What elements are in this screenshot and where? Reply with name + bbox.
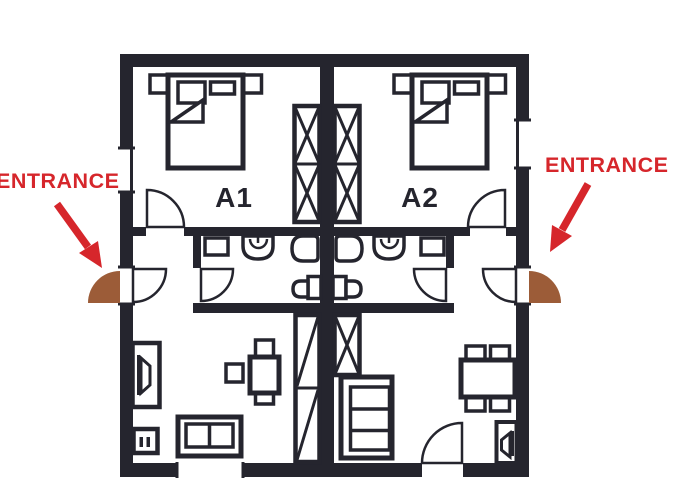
window-bottom-wall-a1 [178,462,242,478]
exterior-door-swing-right [529,271,561,303]
electrical-panel [134,429,158,453]
bidet [293,281,308,297]
wall-bathroom-a1-side [193,228,201,269]
exterior-door-swing-left [88,271,120,303]
panel-switch [147,437,151,447]
room-label-a1: A1 [215,182,253,213]
wall-bathroom-a2-side [446,228,454,269]
floor-plan-screenshot: A1 A2 ENTRANCE ENTRANCE [0,0,700,500]
nightstand [150,75,168,93]
window-jamb [176,462,179,478]
nightstand [488,75,506,93]
toilet [336,236,362,261]
wall-center-party [320,54,334,477]
nightstand [394,75,412,93]
bathroom-cabinet [421,238,444,255]
pillow [455,82,479,94]
panel-switch [140,437,144,447]
wall-bathroom-bottom [193,303,454,313]
living-room-a1 [133,340,280,456]
table [250,357,279,393]
toilet [292,236,318,261]
bidet [346,281,361,297]
window-glass-line [130,149,133,191]
bathroom-door-a2 [414,269,446,301]
floor-plan-canvas: A1 A2 ENTRANCE ENTRANCE [0,0,700,500]
dining-table [461,360,515,397]
window-jamb [242,462,245,478]
terrace-door-a2 [422,423,462,463]
entrance-label-right: ENTRANCE [545,153,668,177]
door-opening-terrace-a2 [422,462,463,478]
bathroom-door-a1 [201,269,233,301]
entrance-annotation-left: ENTRANCE [0,169,119,268]
pillow [211,82,235,94]
entrance-door-a2 [483,269,516,302]
entrance-label-left: ENTRANCE [0,169,119,193]
entrance-arrow-left [57,204,88,247]
bidet-tank [333,277,346,299]
bedroom-door-a2 [468,190,505,227]
window-glass-line [516,121,519,167]
nightstand [244,75,262,93]
wall-bedroom-separator [133,227,516,236]
bedroom-door-a1 [147,190,184,227]
entrance-door-a1 [133,269,166,302]
entrance-annotation-right: ENTRANCE [545,153,668,252]
chair [226,364,243,382]
room-label-a2: A2 [401,182,439,213]
bathroom-cabinet [205,238,228,255]
bookshelf-inner [351,387,390,450]
tv-screen [141,358,150,393]
door-opening-entrance-right [515,268,531,303]
chair [256,340,274,357]
bidet-tank [308,277,321,299]
entrance-arrow-right [562,184,588,230]
